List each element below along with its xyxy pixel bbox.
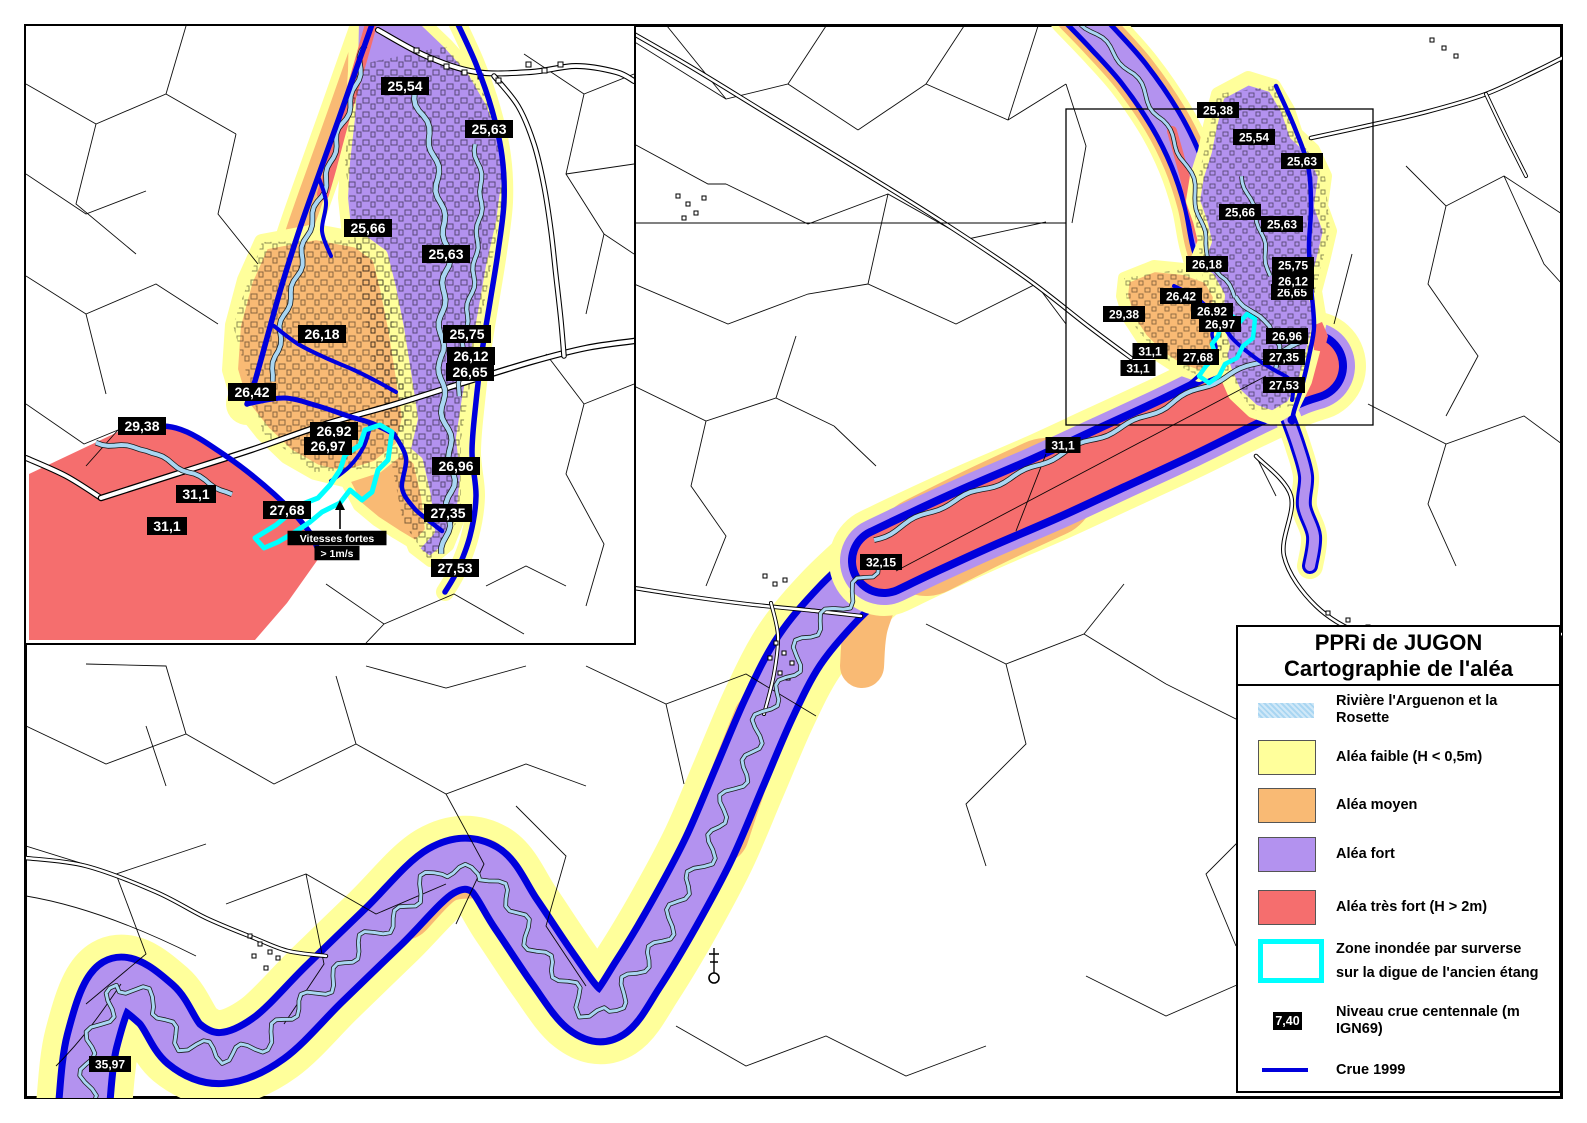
svg-text:31,1: 31,1 — [1126, 361, 1150, 375]
legend-title-line2: Cartographie de l'aléa — [1284, 656, 1513, 682]
elevation-label: 25,63 — [1261, 216, 1303, 232]
svg-text:25,54: 25,54 — [1239, 130, 1269, 144]
scanned-flood-map-page: { "title": {"line1": "PPRi de JUGON", "l… — [0, 0, 1587, 1123]
legend-label-crue1999: Crue 1999 — [1336, 1062, 1405, 1079]
inset-detail-map: Vitesses fortes> 1m/s 25,5425,6325,6625,… — [26, 26, 636, 645]
svg-text:27,68: 27,68 — [269, 502, 304, 518]
inset-map-canvas: Vitesses fortes> 1m/s 25,5425,6325,6625,… — [26, 26, 634, 643]
svg-text:25,75: 25,75 — [1278, 258, 1308, 272]
alea-moyen-swatch — [1258, 788, 1316, 823]
elevation-label: 25,75 — [1272, 257, 1314, 273]
svg-text:25,63: 25,63 — [471, 121, 506, 137]
svg-text:25,54: 25,54 — [387, 78, 422, 94]
elevation-label: 25,63 — [422, 245, 470, 263]
svg-text:26,18: 26,18 — [304, 326, 339, 342]
river-swatch — [1258, 703, 1314, 718]
elevation-label: 31,1 — [176, 485, 216, 503]
elevation-label: 26,42 — [228, 383, 276, 401]
svg-text:27,68: 27,68 — [1183, 350, 1213, 364]
legend-row-tres-fort: Aléa très fort (H > 2m) — [1258, 885, 1553, 929]
elevation-label: 31,1 — [147, 517, 187, 535]
svg-text:25,66: 25,66 — [350, 220, 385, 236]
elevation-label: 26,97 — [304, 437, 352, 455]
legend-label-moyen: Aléa moyen — [1336, 797, 1417, 814]
svg-text:31,1: 31,1 — [1138, 344, 1162, 358]
svg-text:27,35: 27,35 — [430, 505, 465, 521]
elevation-label: 26,96 — [1266, 328, 1308, 344]
elevation-label: 25,75 — [443, 325, 491, 343]
vitesses-fortes-note: Vitesses fortes — [288, 531, 387, 546]
svg-text:26,97: 26,97 — [1205, 317, 1235, 331]
legend-label-surverse-1: Zone inondée par surverse — [1336, 941, 1538, 958]
legend-title-line1: PPRi de JUGON — [1315, 630, 1482, 656]
svg-text:26,97: 26,97 — [310, 438, 345, 454]
svg-text:32,15: 32,15 — [866, 555, 896, 569]
svg-text:25,75: 25,75 — [449, 326, 484, 342]
elevation-label: 32,15 — [860, 554, 902, 570]
legend-label-river: Rivière l'Arguenon et la Rosette — [1336, 693, 1553, 727]
svg-text:26,18: 26,18 — [1192, 257, 1222, 271]
svg-text:25,63: 25,63 — [1267, 217, 1297, 231]
elevation-label: 26,12 — [1272, 273, 1314, 289]
legend-label-fort: Aléa fort — [1336, 846, 1395, 863]
svg-text:26,42: 26,42 — [1166, 289, 1196, 303]
legend-row-surverse: Zone inondée par surverse sur la digue d… — [1258, 933, 1553, 989]
legend-label-surverse-2: sur la digue de l'ancien étang — [1336, 965, 1538, 982]
elevation-label: 25,66 — [344, 219, 392, 237]
elevation-label: 25,63 — [1281, 153, 1323, 169]
elevation-label: 31,1 — [1046, 437, 1081, 453]
alea-tres-fort-swatch — [1258, 890, 1316, 925]
legend-row-faible: Aléa faible (H < 0,5m) — [1258, 735, 1553, 779]
map-symbols — [709, 948, 719, 983]
elevation-label: 26,18 — [1186, 256, 1228, 272]
vitesses-fortes-note: > 1m/s — [315, 546, 360, 561]
legend-row-fort: Aléa fort — [1258, 832, 1553, 876]
svg-text:31,1: 31,1 — [1051, 438, 1075, 452]
svg-text:31,1: 31,1 — [153, 518, 180, 534]
svg-text:27,53: 27,53 — [1269, 378, 1299, 392]
svg-text:26,42: 26,42 — [234, 384, 269, 400]
elevation-label: 25,63 — [465, 120, 513, 138]
svg-text:27,53: 27,53 — [437, 560, 472, 576]
legend-box: PPRi de JUGON Cartographie de l'aléa Riv… — [1236, 625, 1561, 1093]
crue-1999-line-swatch — [1262, 1068, 1308, 1072]
legend-title: PPRi de JUGON Cartographie de l'aléa — [1238, 627, 1559, 686]
zone-surverse-swatch — [1258, 939, 1324, 983]
svg-text:26,92: 26,92 — [316, 423, 351, 439]
elevation-label: 27,53 — [431, 559, 479, 577]
svg-text:26,96: 26,96 — [438, 458, 473, 474]
svg-text:27,35: 27,35 — [1269, 350, 1299, 364]
legend-label-faible: Aléa faible (H < 0,5m) — [1336, 749, 1482, 766]
elevation-label: 25,54 — [1233, 129, 1275, 145]
svg-text:Vitesses fortes: Vitesses fortes — [300, 533, 375, 545]
legend-row-river: Rivière l'Arguenon et la Rosette — [1258, 695, 1553, 725]
svg-text:25,63: 25,63 — [428, 246, 463, 262]
elevation-label: 26,12 — [447, 347, 495, 365]
legend-row-crue1999: Crue 1999 — [1258, 1057, 1553, 1083]
elevation-label: 27,35 — [424, 504, 472, 522]
svg-text:26,12: 26,12 — [1278, 274, 1308, 288]
elevation-label: 25,66 — [1219, 204, 1261, 220]
elevation-label: 27,35 — [1263, 349, 1305, 365]
elevation-label: 25,54 — [381, 77, 429, 95]
alea-fort-swatch — [1258, 837, 1316, 872]
niveau-crue-sample-chip: 7,40 — [1273, 1012, 1302, 1030]
elevation-label: 31,1 — [1121, 360, 1156, 376]
svg-text:26,12: 26,12 — [453, 348, 488, 364]
elevation-label: 25,38 — [1197, 102, 1239, 118]
elevation-label: 29,38 — [118, 417, 166, 435]
elevation-label: 26,18 — [298, 325, 346, 343]
elevation-label: 26,96 — [432, 457, 480, 475]
svg-text:31,1: 31,1 — [182, 486, 209, 502]
elevation-label: 29,38 — [1103, 306, 1145, 322]
legend-row-niveau: 7,40 Niveau crue centennale (m IGN69) — [1258, 1007, 1553, 1035]
legend-label-tres-fort: Aléa très fort (H > 2m) — [1336, 899, 1487, 916]
svg-text:26,96: 26,96 — [1272, 329, 1302, 343]
alea-faible-swatch — [1258, 740, 1316, 775]
svg-text:25,66: 25,66 — [1225, 205, 1255, 219]
svg-text:26,65: 26,65 — [452, 364, 487, 380]
svg-text:35,97: 35,97 — [95, 1057, 125, 1071]
svg-text:25,63: 25,63 — [1287, 154, 1317, 168]
elevation-label: 26,42 — [1160, 288, 1202, 304]
elevation-label: 26,65 — [446, 363, 494, 381]
svg-text:29,38: 29,38 — [1109, 307, 1139, 321]
svg-text:> 1m/s: > 1m/s — [321, 548, 354, 560]
elevation-label: 35,97 — [89, 1056, 131, 1072]
legend-row-moyen: Aléa moyen — [1258, 783, 1553, 827]
elevation-label: 31,1 — [1133, 343, 1168, 359]
elevation-label: 26,97 — [1199, 316, 1241, 332]
elevation-label: 27,53 — [1263, 377, 1305, 393]
elevation-label: 27,68 — [263, 501, 311, 519]
svg-text:29,38: 29,38 — [124, 418, 159, 434]
legend-label-niveau: Niveau crue centennale (m IGN69) — [1336, 1004, 1553, 1038]
svg-text:25,38: 25,38 — [1203, 103, 1233, 117]
elevation-label: 27,68 — [1177, 349, 1219, 365]
